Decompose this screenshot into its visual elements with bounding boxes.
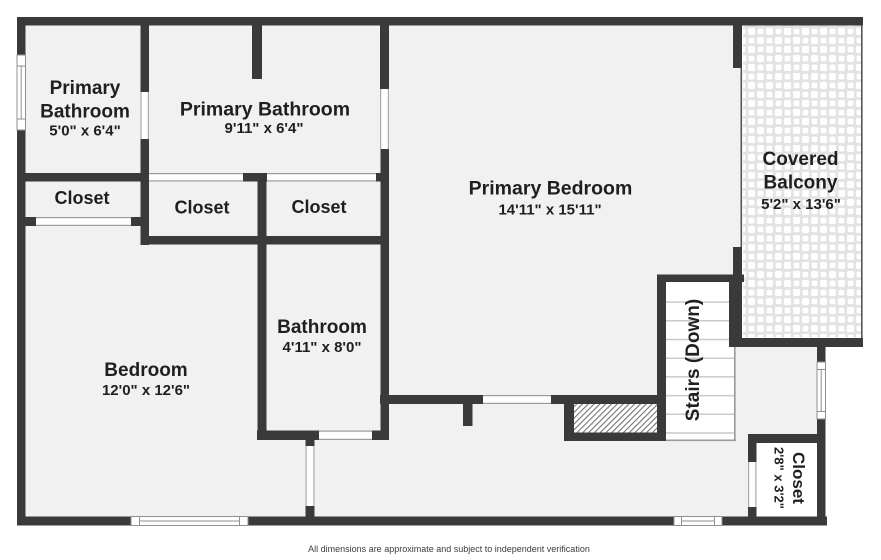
svg-text:5'0" x 6'4": 5'0" x 6'4" (49, 123, 120, 140)
svg-text:Bedroom: Bedroom (104, 360, 187, 381)
svg-text:Primary Bedroom: Primary Bedroom (469, 178, 633, 200)
svg-text:Stairs (Down): Stairs (Down) (683, 299, 704, 421)
svg-text:All dimensions are approximate: All dimensions are approximate and subje… (308, 544, 590, 554)
svg-text:Closet: Closet (54, 188, 109, 208)
svg-text:9'11" x 6'4": 9'11" x 6'4" (225, 120, 304, 137)
svg-text:Primary Bathroom: Primary Bathroom (180, 99, 350, 121)
svg-text:Balcony: Balcony (764, 173, 838, 194)
svg-text:4'11" x 8'0": 4'11" x 8'0" (283, 339, 362, 356)
svg-text:14'11" x 15'11": 14'11" x 15'11" (498, 202, 601, 219)
svg-text:12'0" x 12'6": 12'0" x 12'6" (102, 382, 190, 399)
svg-text:Bathroom: Bathroom (277, 317, 367, 338)
svg-text:Bathroom: Bathroom (40, 102, 130, 123)
svg-text:Primary: Primary (50, 78, 121, 99)
svg-text:Closet: Closet (291, 197, 346, 217)
svg-text:5'2" x 13'6": 5'2" x 13'6" (761, 196, 841, 213)
svg-text:Covered: Covered (762, 149, 838, 170)
svg-text:Closet: Closet (174, 198, 229, 218)
svg-text:Closet: Closet (789, 452, 808, 504)
svg-text:2'8" x 3'2": 2'8" x 3'2" (772, 447, 787, 509)
